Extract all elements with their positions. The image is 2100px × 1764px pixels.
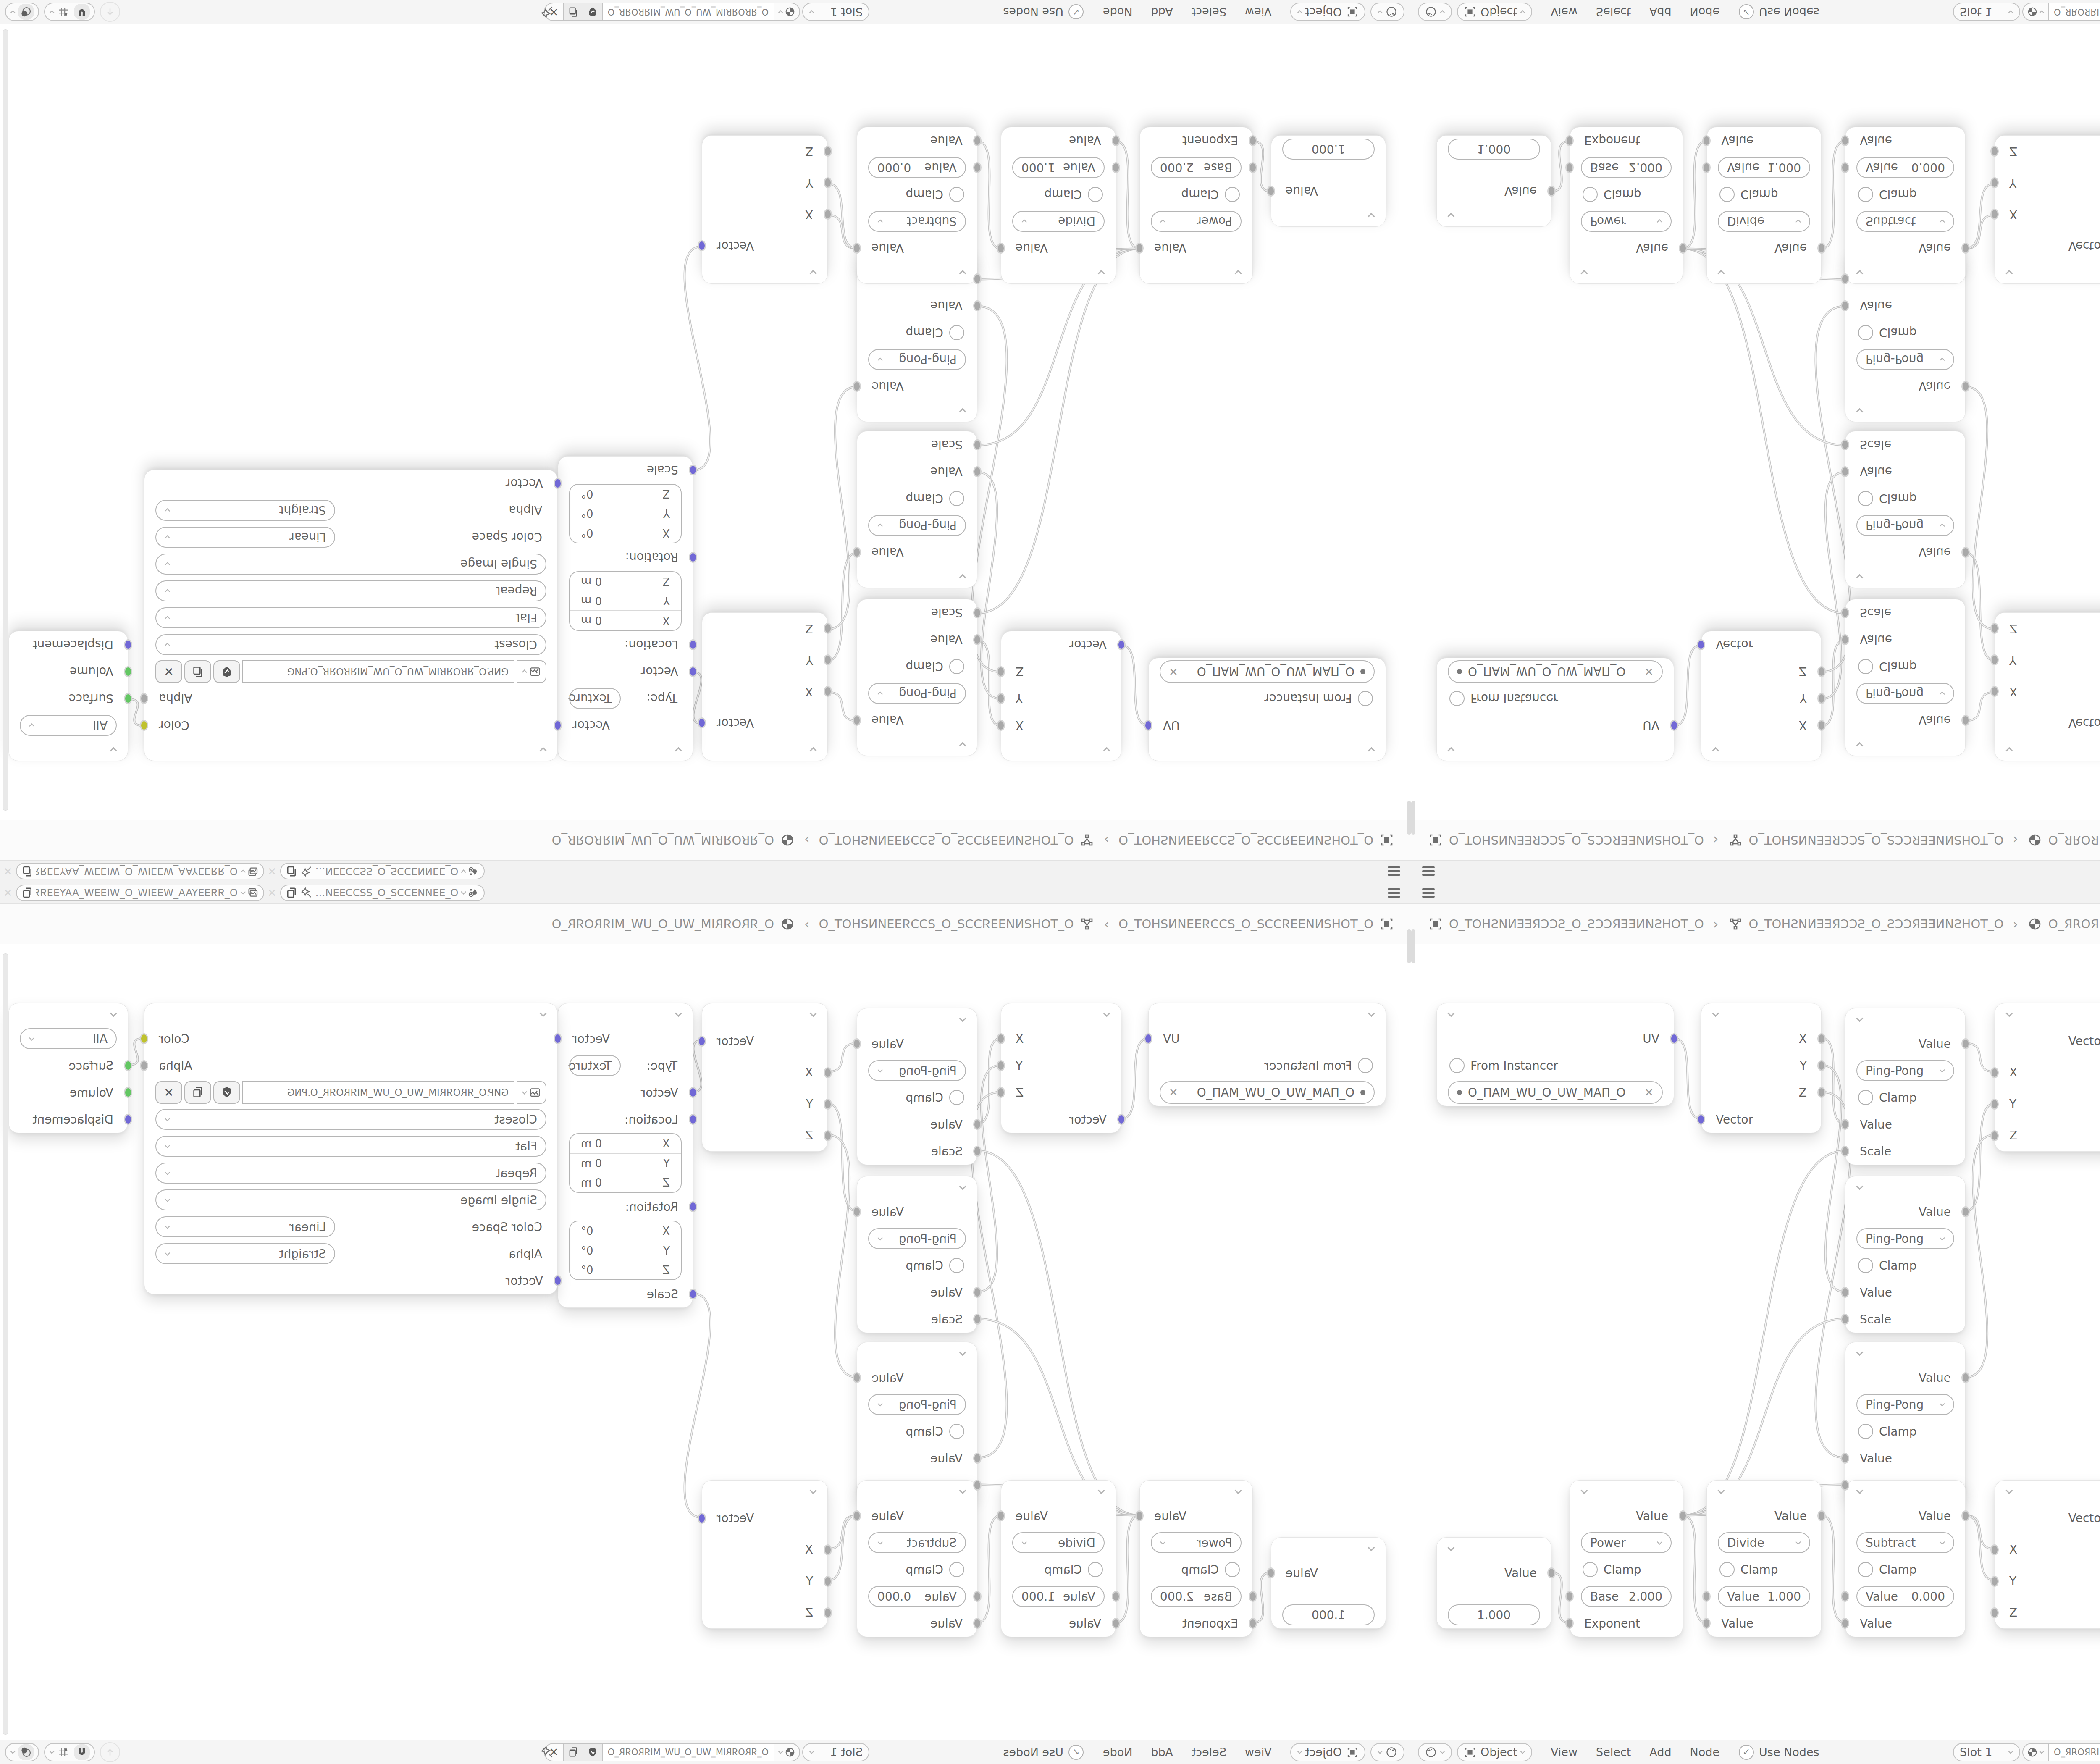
node-socket[interactable] bbox=[973, 135, 982, 146]
image-name-field[interactable]: O_ЯROЯRIM_WU_O_UW_MIЯROЯR_O bbox=[602, 1743, 774, 1761]
node-socket[interactable] bbox=[1817, 1060, 1826, 1071]
node-socket[interactable] bbox=[973, 1314, 982, 1325]
unlink-icon[interactable]: ✕ bbox=[155, 1081, 182, 1104]
collapse-icon[interactable] bbox=[2005, 1487, 2013, 1494]
vector-field-row[interactable]: Y0 m bbox=[570, 591, 681, 611]
node-socket[interactable] bbox=[1961, 1206, 1970, 1217]
node-select[interactable]: Straight bbox=[155, 500, 335, 521]
node-select[interactable]: Ping-Pong bbox=[1856, 1060, 1954, 1081]
shader-type-dropdown[interactable]: Object bbox=[1290, 3, 1365, 21]
falloff-controls[interactable] bbox=[5, 3, 39, 21]
node-socket[interactable] bbox=[124, 639, 132, 650]
node-socket[interactable] bbox=[1144, 1033, 1152, 1044]
uv-map-node[interactable]: UVFrom InstancerO_ПAM_WU_O_UW_MAП_O✕ bbox=[1436, 1003, 1674, 1106]
node-socket[interactable] bbox=[1841, 1314, 1849, 1325]
collapse-icon[interactable] bbox=[1856, 1015, 1863, 1022]
node-header[interactable] bbox=[1707, 1480, 1821, 1502]
pin-icon[interactable] bbox=[540, 1745, 554, 1759]
node-socket[interactable] bbox=[1990, 146, 1999, 157]
node-socket[interactable] bbox=[997, 1510, 1005, 1521]
breadcrumb-item[interactable]: O_TOHƧNИƎƎЯƆƆƧ_O_ƧƆƆЯƎƎИNƧHOT_O bbox=[1118, 916, 1394, 932]
node-header[interactable] bbox=[1845, 1176, 1965, 1198]
mapping-node[interactable]: VectorType:TextureVectorLocation:X0 mY0 … bbox=[558, 456, 693, 761]
node-header[interactable] bbox=[857, 734, 977, 756]
node-select[interactable]: Power bbox=[1581, 211, 1672, 232]
collapse-icon[interactable] bbox=[959, 574, 966, 581]
node-header[interactable] bbox=[857, 400, 977, 422]
node-select[interactable]: Texture bbox=[569, 688, 621, 709]
close-icon[interactable]: ✕ bbox=[267, 865, 278, 878]
node-socket[interactable] bbox=[1135, 243, 1144, 254]
breadcrumb-item[interactable]: O_TOHƧNИƎƎЯƆƆƧ_O_ƧƆƆЯƎƎИNƧHOT_O bbox=[1428, 832, 1704, 848]
node-header[interactable] bbox=[857, 1008, 977, 1030]
vector-field-row[interactable]: Y0° bbox=[570, 504, 681, 523]
node-socket[interactable] bbox=[997, 1060, 1005, 1071]
combine-xyz-top-node[interactable]: VectorXYZ bbox=[702, 612, 828, 761]
node-socket[interactable] bbox=[689, 552, 697, 563]
vector-field-row[interactable]: Z0 m bbox=[570, 572, 681, 591]
node-socket[interactable] bbox=[824, 655, 832, 666]
node-select[interactable]: All bbox=[20, 1028, 117, 1049]
slot-dropdown[interactable]: Slot 1 bbox=[1953, 3, 2020, 21]
node-socket[interactable] bbox=[1961, 547, 1970, 558]
checkbox-icon[interactable] bbox=[1583, 187, 1598, 202]
close-icon[interactable]: ✕ bbox=[1644, 1086, 1654, 1099]
vector-field-row[interactable]: Y0° bbox=[570, 1241, 681, 1260]
breadcrumb-item[interactable]: O_TOHƧNИƎƎЯƆƆƧ_O_ƧƆƆЯƎƎИNƧHOT_O bbox=[1118, 832, 1394, 848]
collapse-icon[interactable] bbox=[959, 1349, 966, 1356]
breadcrumb-item[interactable]: O_TOHƧNИƎƎЯƆƆƧ_O_ƧƆƆЯƎƎИNƧHOT_O bbox=[819, 916, 1095, 932]
menu-add[interactable]: Add bbox=[1151, 1746, 1173, 1759]
node-select[interactable]: Closest bbox=[155, 634, 546, 655]
node-socket[interactable] bbox=[1817, 693, 1826, 704]
node-socket[interactable] bbox=[824, 209, 832, 220]
node-socket[interactable] bbox=[1841, 439, 1849, 450]
node-socket[interactable] bbox=[973, 1591, 982, 1602]
editor-type-button[interactable] bbox=[1370, 1743, 1404, 1761]
node-socket[interactable] bbox=[853, 1510, 861, 1521]
breadcrumb-item[interactable]: O_TOHƧNИƎƎЯƆƆƧ_O_ƧƆƆЯƎƎИNƧHOT_O bbox=[1728, 832, 2004, 848]
uv-map-node[interactable]: UVFrom InstancerO_ПAM_WU_O_UW_MAП_O✕ bbox=[1436, 658, 1674, 761]
collapse-icon[interactable] bbox=[1368, 1010, 1375, 1017]
collapse-icon[interactable] bbox=[1098, 270, 1105, 277]
vector-field-row[interactable]: Z0 m bbox=[570, 1173, 681, 1192]
node-header[interactable] bbox=[1845, 1480, 1965, 1502]
node-select[interactable]: Flat bbox=[155, 1136, 546, 1157]
vector-field-group[interactable]: X0 mY0 mZ0 m bbox=[569, 1133, 682, 1193]
node-socket[interactable] bbox=[824, 686, 832, 697]
node-header[interactable] bbox=[1570, 1480, 1683, 1502]
node-header[interactable] bbox=[1845, 1342, 1965, 1364]
node-select[interactable]: Ping-Pong bbox=[1856, 349, 1954, 370]
node-socket[interactable] bbox=[1990, 1130, 1999, 1141]
node-socket[interactable] bbox=[554, 1275, 562, 1286]
collapse-icon[interactable] bbox=[2005, 747, 2013, 754]
node-socket[interactable] bbox=[1841, 1287, 1849, 1298]
node-socket[interactable] bbox=[973, 162, 982, 173]
menu-node[interactable]: Node bbox=[1690, 5, 1719, 18]
vector-field-row[interactable]: Y0 m bbox=[570, 1153, 681, 1173]
close-icon[interactable]: ✕ bbox=[3, 887, 13, 899]
node-socket[interactable] bbox=[140, 1060, 148, 1071]
node-header[interactable] bbox=[1437, 1003, 1674, 1025]
menu-view[interactable]: View bbox=[1551, 5, 1578, 18]
node-socket[interactable] bbox=[689, 1289, 697, 1299]
node-header[interactable] bbox=[702, 1003, 827, 1025]
node-socket[interactable] bbox=[973, 1453, 982, 1464]
collapse-icon[interactable] bbox=[1447, 1544, 1454, 1551]
node-socket[interactable] bbox=[689, 1087, 697, 1098]
menu-add[interactable]: Add bbox=[1649, 5, 1671, 18]
shader-type-dropdown[interactable]: Object bbox=[1457, 3, 1532, 21]
slot-dropdown[interactable]: Slot 1 bbox=[1953, 1743, 2020, 1761]
pin-icon[interactable] bbox=[540, 5, 554, 19]
node-value-field[interactable]: Value1.000 bbox=[1012, 1586, 1105, 1607]
node-select[interactable]: Subtract bbox=[1856, 211, 1954, 232]
node-socket[interactable] bbox=[1670, 720, 1678, 731]
node-select[interactable]: Subtract bbox=[868, 1532, 966, 1553]
uv-map-select[interactable]: O_ПAM_WU_O_UW_MAП_O✕ bbox=[1160, 660, 1375, 683]
node-socket[interactable] bbox=[1961, 243, 1970, 254]
node-value-field[interactable]: Base2.000 bbox=[1581, 1586, 1672, 1607]
node-value-field[interactable]: Value0.000 bbox=[868, 157, 966, 178]
combine-xyz-top-node[interactable]: VectorXYZ bbox=[1995, 612, 2100, 761]
collapse-icon[interactable] bbox=[959, 1487, 966, 1494]
node-header[interactable] bbox=[1845, 566, 1965, 588]
divide-node[interactable]: ValueDivideClampValue1.000Value bbox=[1706, 1480, 1822, 1637]
node-socket[interactable] bbox=[1841, 607, 1849, 618]
node-socket[interactable] bbox=[973, 439, 982, 450]
node-socket[interactable] bbox=[1697, 1114, 1705, 1125]
collapse-icon[interactable] bbox=[1856, 1487, 1863, 1494]
node-header[interactable] bbox=[1845, 734, 1965, 756]
subtract-node[interactable]: ValueSubtractClampValue0.000Value bbox=[1845, 127, 1966, 284]
separate-xyz-node[interactable]: XYZVector bbox=[1701, 1003, 1822, 1133]
node-socket[interactable] bbox=[1990, 1099, 1999, 1110]
checkbox-icon[interactable] bbox=[1358, 1058, 1373, 1073]
power-node[interactable]: ValuePowerClampBase2.000Exponent bbox=[1570, 127, 1683, 284]
collapse-icon[interactable] bbox=[959, 1015, 966, 1022]
node-header[interactable] bbox=[1271, 1538, 1386, 1559]
menu-add[interactable]: Add bbox=[1151, 5, 1173, 18]
mapping-node[interactable]: VectorType:TextureVectorLocation:X0 mY0 … bbox=[558, 1003, 693, 1308]
collapse-icon[interactable] bbox=[810, 270, 817, 277]
collapse-icon[interactable] bbox=[1580, 1487, 1588, 1494]
node-header[interactable] bbox=[1140, 1480, 1252, 1502]
node-socket[interactable] bbox=[824, 1130, 832, 1141]
fake-user-shield-icon[interactable] bbox=[583, 3, 602, 21]
menu-icon[interactable] bbox=[1388, 888, 1400, 898]
pingpong-x-node[interactable]: ValuePing-PongClampValueScale bbox=[1845, 599, 1966, 756]
value-node[interactable]: Value1.000 bbox=[1436, 135, 1551, 227]
collapse-icon[interactable] bbox=[1103, 1010, 1110, 1017]
node-socket[interactable] bbox=[997, 1033, 1005, 1044]
node-socket[interactable] bbox=[853, 243, 861, 254]
node-socket[interactable] bbox=[554, 478, 562, 489]
node-value-field[interactable]: 1.000 bbox=[1282, 1604, 1375, 1625]
shader-type-dropdown[interactable]: Object bbox=[1290, 1743, 1365, 1761]
collapse-icon[interactable] bbox=[675, 747, 682, 754]
power-node[interactable]: ValuePowerClampBase2.000Exponent bbox=[1139, 127, 1253, 284]
checkbox-icon[interactable] bbox=[949, 325, 964, 340]
subtract-node[interactable]: ValueSubtractClampValue0.000Value bbox=[857, 1480, 977, 1637]
node-socket[interactable] bbox=[1817, 720, 1826, 731]
breadcrumb-item[interactable]: O_ЯROЯRIM_WU_O_UW_MIЯROЯR_O bbox=[2027, 832, 2100, 848]
value-node[interactable]: Value1.000 bbox=[1271, 135, 1386, 227]
collapse-icon[interactable] bbox=[675, 1010, 682, 1017]
node-socket[interactable] bbox=[1990, 655, 1999, 666]
node-socket[interactable] bbox=[1961, 715, 1970, 726]
node-socket[interactable] bbox=[1841, 162, 1849, 173]
collapse-icon[interactable] bbox=[2005, 1010, 2013, 1017]
collapse-icon[interactable] bbox=[2005, 270, 2013, 277]
editor-type-button[interactable] bbox=[1418, 1743, 1452, 1761]
browse-image-button[interactable] bbox=[774, 1743, 800, 1761]
node-socket[interactable] bbox=[124, 1087, 132, 1098]
node-socket[interactable] bbox=[973, 1146, 982, 1157]
divide-node[interactable]: ValueDivideClampValue1.000Value bbox=[1706, 127, 1822, 284]
node-header[interactable] bbox=[558, 1003, 693, 1025]
power-node[interactable]: ValuePowerClampBase2.000Exponent bbox=[1570, 1480, 1683, 1637]
node-socket[interactable] bbox=[997, 666, 1005, 677]
browse-image-button[interactable] bbox=[2022, 1743, 2049, 1761]
menu-select[interactable]: Select bbox=[1192, 1746, 1226, 1759]
node-socket[interactable] bbox=[1817, 666, 1826, 677]
separate-xyz-node[interactable]: XYZVector bbox=[1001, 1003, 1121, 1133]
node-socket[interactable] bbox=[689, 666, 697, 677]
node-socket[interactable] bbox=[1961, 1038, 1970, 1049]
node-select[interactable]: Ping-Pong bbox=[1856, 1394, 1954, 1415]
node-socket[interactable] bbox=[1817, 243, 1826, 254]
pingpong-x-node[interactable]: ValuePing-PongClampValueScale bbox=[857, 1008, 977, 1165]
node-socket[interactable] bbox=[824, 1099, 832, 1110]
browse-image-button[interactable] bbox=[517, 1081, 546, 1104]
node-socket[interactable] bbox=[1990, 623, 1999, 634]
node-header[interactable] bbox=[9, 739, 128, 761]
node-socket[interactable] bbox=[1565, 162, 1574, 173]
scrollbar[interactable] bbox=[3, 29, 8, 811]
checkbox-icon[interactable] bbox=[949, 1562, 964, 1577]
slot-dropdown[interactable]: Slot 1 bbox=[802, 1743, 869, 1761]
node-socket[interactable] bbox=[1547, 1567, 1556, 1578]
checkbox-icon[interactable] bbox=[1858, 1090, 1873, 1105]
image-name-field[interactable]: O_ЯROЯRIM_WU_O_UW_MIЯROЯR_O bbox=[2049, 3, 2100, 21]
menu-icon[interactable] bbox=[1422, 888, 1435, 898]
node-header[interactable] bbox=[1995, 1003, 2100, 1025]
node-select[interactable]: Repeat bbox=[155, 580, 546, 601]
node-socket[interactable] bbox=[1267, 1567, 1275, 1578]
node-socket[interactable] bbox=[824, 1576, 832, 1587]
combine-xyz-bottom-node[interactable]: VectorXYZ bbox=[1995, 135, 2100, 284]
falloff-controls[interactable] bbox=[5, 1743, 39, 1761]
separate-xyz-node[interactable]: XYZVector bbox=[1701, 631, 1822, 761]
node-header[interactable] bbox=[702, 262, 827, 283]
pingpong-y-node[interactable]: ValuePing-PongClampValueScale bbox=[857, 1176, 977, 1333]
menu-select[interactable]: Select bbox=[1192, 5, 1226, 18]
copy-icon[interactable] bbox=[285, 887, 298, 899]
node-socket[interactable] bbox=[1112, 162, 1120, 173]
copy-icon[interactable] bbox=[563, 3, 583, 21]
node-socket[interactable] bbox=[973, 1287, 982, 1298]
uv-map-select[interactable]: O_ПAM_WU_O_UW_MAП_O✕ bbox=[1448, 660, 1663, 683]
pin-icon[interactable] bbox=[300, 887, 313, 899]
node-select[interactable]: Ping-Pong bbox=[868, 1394, 966, 1415]
node-socket[interactable] bbox=[973, 1618, 982, 1629]
collapse-icon[interactable] bbox=[1712, 1010, 1719, 1017]
fake-user-shield-icon[interactable] bbox=[213, 1081, 240, 1104]
vector-field-row[interactable]: Z0° bbox=[570, 485, 681, 504]
node-socket[interactable] bbox=[140, 1033, 148, 1044]
node-value-field[interactable]: 1.000 bbox=[1282, 139, 1375, 160]
node-socket[interactable] bbox=[1702, 162, 1711, 173]
collapse-icon[interactable] bbox=[1447, 213, 1454, 220]
node-socket[interactable] bbox=[973, 1480, 982, 1491]
menu-view[interactable]: View bbox=[1245, 5, 1272, 18]
node-socket[interactable] bbox=[1702, 1618, 1711, 1629]
checkbox-icon[interactable] bbox=[949, 187, 964, 202]
node-select[interactable]: Texture bbox=[569, 1055, 621, 1076]
node-socket[interactable] bbox=[124, 693, 132, 704]
fake-user-shield-icon[interactable] bbox=[583, 1743, 602, 1761]
checkbox-icon[interactable] bbox=[1858, 491, 1873, 506]
collapse-icon[interactable] bbox=[810, 747, 817, 754]
node-socket[interactable] bbox=[1702, 1591, 1711, 1602]
node-socket[interactable] bbox=[973, 607, 982, 618]
pingpong-z-node[interactable]: ValuePing-PongClampValueScale bbox=[1845, 265, 1966, 422]
node-socket[interactable] bbox=[1961, 1372, 1970, 1383]
uv-map-node[interactable]: UVFrom InstancerO_ПAM_WU_O_UW_MAП_O✕ bbox=[1148, 658, 1386, 761]
pin-icon[interactable] bbox=[300, 865, 313, 878]
combine-xyz-bottom-node[interactable]: VectorXYZ bbox=[1995, 1480, 2100, 1629]
node-select[interactable]: Ping-Pong bbox=[868, 1228, 966, 1249]
pingpong-y-node[interactable]: ValuePing-PongClampValueScale bbox=[857, 431, 977, 588]
menu-node[interactable]: Node bbox=[1690, 1746, 1719, 1759]
node-socket[interactable] bbox=[689, 465, 697, 475]
menu-node[interactable]: Node bbox=[1103, 5, 1132, 18]
node-select[interactable]: Subtract bbox=[1856, 1532, 1954, 1553]
vector-field-row[interactable]: X0 m bbox=[570, 611, 681, 630]
vector-field-row[interactable]: X0° bbox=[570, 523, 681, 543]
menu-icon[interactable] bbox=[1422, 867, 1435, 876]
view-layer-selector[interactable]: O_ЯЯƎƎYAA_WƎƎIW_O_WIƎƎW_AAYƎƎЯЯ_O bbox=[16, 863, 264, 880]
node-header[interactable] bbox=[857, 262, 977, 283]
node-header[interactable] bbox=[1845, 1008, 1965, 1030]
node-socket[interactable] bbox=[140, 720, 148, 731]
node-socket[interactable] bbox=[1249, 135, 1257, 146]
uv-map-select[interactable]: O_ПAM_WU_O_UW_MAП_O✕ bbox=[1448, 1081, 1663, 1104]
collapse-icon[interactable] bbox=[1368, 1544, 1375, 1551]
collapse-icon[interactable] bbox=[1235, 270, 1242, 277]
node-socket[interactable] bbox=[554, 720, 562, 731]
node-socket[interactable] bbox=[1841, 1453, 1849, 1464]
material-output-node[interactable]: AllSurfaceVolumeDisplacement bbox=[8, 1003, 128, 1133]
checkbox-icon[interactable] bbox=[1358, 691, 1373, 706]
checkbox-icon[interactable] bbox=[1719, 187, 1735, 202]
slot-dropdown[interactable]: Slot 1 bbox=[802, 3, 869, 21]
checkbox-icon[interactable] bbox=[1088, 1562, 1103, 1577]
menu-view[interactable]: View bbox=[1551, 1746, 1578, 1759]
pingpong-y-node[interactable]: ValuePing-PongClampValueScale bbox=[1845, 1176, 1966, 1333]
close-icon[interactable]: ✕ bbox=[1169, 1086, 1178, 1099]
node-select[interactable]: Power bbox=[1151, 1532, 1242, 1553]
node-header[interactable] bbox=[702, 1480, 827, 1502]
node-socket[interactable] bbox=[1112, 1591, 1120, 1602]
node-socket[interactable] bbox=[1990, 209, 1999, 220]
collapse-icon[interactable] bbox=[1447, 747, 1454, 754]
node-socket[interactable] bbox=[689, 639, 697, 650]
node-header[interactable] bbox=[1845, 262, 1965, 283]
checkbox-icon[interactable] bbox=[949, 659, 964, 674]
collapse-icon[interactable] bbox=[1712, 747, 1719, 754]
node-socket[interactable] bbox=[124, 1114, 132, 1125]
collapse-icon[interactable] bbox=[1098, 1487, 1105, 1494]
uv-map-select[interactable]: O_ПAM_WU_O_UW_MAП_O✕ bbox=[1160, 1081, 1375, 1104]
close-icon[interactable]: ✕ bbox=[1644, 665, 1654, 678]
fake-user-shield-icon[interactable] bbox=[213, 660, 240, 683]
checkbox-icon[interactable] bbox=[1225, 1562, 1240, 1577]
node-socket[interactable] bbox=[1679, 1510, 1687, 1521]
menu-select[interactable]: Select bbox=[1596, 1746, 1631, 1759]
node-socket[interactable] bbox=[1990, 686, 1999, 697]
uv-map-node[interactable]: UVFrom InstancerO_ПAM_WU_O_UW_MAП_O✕ bbox=[1148, 1003, 1386, 1106]
collapse-icon[interactable] bbox=[1856, 742, 1863, 749]
pingpong-x-node[interactable]: ValuePing-PongClampValueScale bbox=[857, 599, 977, 756]
breadcrumb-item[interactable]: O_TOHƧNИƎƎЯƆƆƧ_O_ƧƆƆЯƎƎИNƧHOT_O bbox=[1728, 916, 2004, 932]
copy-icon[interactable] bbox=[285, 865, 298, 878]
node-header[interactable] bbox=[1001, 739, 1121, 761]
node-socket[interactable] bbox=[698, 1513, 706, 1524]
node-header[interactable] bbox=[1995, 262, 2100, 283]
node-socket[interactable] bbox=[140, 693, 148, 704]
node-header[interactable] bbox=[702, 739, 827, 761]
node-select[interactable]: Linear bbox=[155, 1216, 335, 1237]
node-header[interactable] bbox=[144, 739, 557, 761]
pingpong-z-node[interactable]: ValuePing-PongClampValueScale bbox=[1845, 1342, 1966, 1499]
node-select[interactable]: Closest bbox=[155, 1109, 546, 1130]
collapse-icon[interactable] bbox=[959, 1183, 966, 1190]
node-socket[interactable] bbox=[853, 547, 861, 558]
collapse-icon[interactable] bbox=[1856, 1183, 1863, 1190]
editor-type-button[interactable] bbox=[1418, 3, 1452, 21]
node-socket[interactable] bbox=[997, 243, 1005, 254]
value-node[interactable]: Value1.000 bbox=[1436, 1537, 1551, 1629]
collapse-icon[interactable] bbox=[1368, 747, 1375, 754]
node-socket[interactable] bbox=[973, 1119, 982, 1130]
divide-node[interactable]: ValueDivideClampValue1.000Value bbox=[1001, 1480, 1116, 1637]
checkbox-icon[interactable] bbox=[1088, 187, 1103, 202]
image-name-field[interactable]: GИP.O_ЯROЯRIM_WU_O_UW_MIЯROЯR_O.PNG bbox=[242, 1081, 514, 1104]
node-socket[interactable] bbox=[1990, 1544, 1999, 1555]
copy-icon[interactable] bbox=[563, 1743, 583, 1761]
collapse-icon[interactable] bbox=[1235, 1487, 1242, 1494]
node-socket[interactable] bbox=[853, 1038, 861, 1049]
checkbox-icon[interactable] bbox=[949, 1424, 964, 1439]
node-socket[interactable] bbox=[698, 718, 706, 729]
node-select[interactable]: Repeat bbox=[155, 1163, 546, 1184]
copy-icon[interactable] bbox=[21, 887, 34, 899]
combine-xyz-top-node[interactable]: VectorXYZ bbox=[1995, 1003, 2100, 1152]
node-socket[interactable] bbox=[698, 1036, 706, 1047]
subtract-node[interactable]: ValueSubtractClampValue0.000Value bbox=[1845, 1480, 1966, 1637]
node-socket[interactable] bbox=[1817, 1087, 1826, 1098]
node-socket[interactable] bbox=[853, 1372, 861, 1383]
node-select[interactable]: Ping-Pong bbox=[868, 1060, 966, 1081]
node-socket[interactable] bbox=[124, 1060, 132, 1071]
node-select[interactable]: Single Image bbox=[155, 554, 546, 575]
vector-field-group[interactable]: X0°Y0°Z0° bbox=[569, 1221, 682, 1280]
node-value-field[interactable]: Value0.000 bbox=[1856, 157, 1954, 178]
checkbox-icon[interactable] bbox=[1858, 1258, 1873, 1273]
